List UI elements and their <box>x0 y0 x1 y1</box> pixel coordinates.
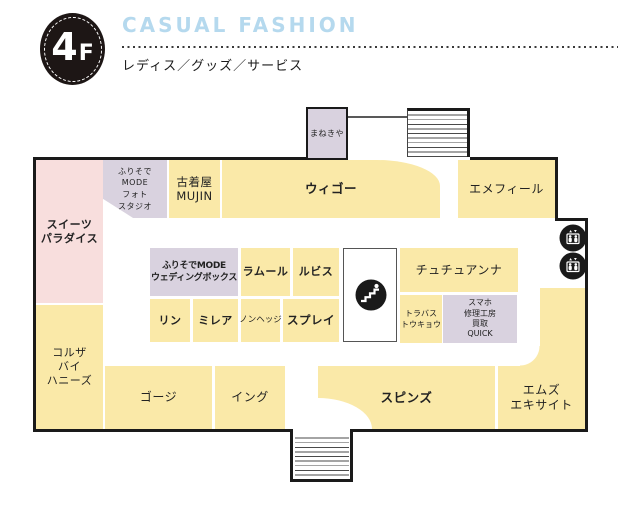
store-aimerfeel: エメフィール <box>458 160 555 218</box>
store-ms-excite-strip <box>540 288 585 368</box>
store-wego: ウィゴー <box>222 160 440 218</box>
store-tutuanna: チュチュアンナ <box>400 248 518 292</box>
store-ing: イング <box>215 366 285 429</box>
staircase-top <box>407 108 470 157</box>
store-sweets-paradise: スイーツ パラダイス <box>36 160 103 303</box>
store-smartphone-repair-quick: スマホ 修理工房 買取 QUICK <box>443 295 517 343</box>
elevator-icon <box>560 253 587 280</box>
store-spinns: スピンズ <box>318 366 495 429</box>
store-travas-tokyo: トラバス トウキョウ <box>400 295 442 343</box>
store-rubis: ルビス <box>293 248 339 296</box>
store-lamour: ラムール <box>241 248 290 296</box>
store-furisode-mode-wedding-box: ふりそでMODE ウェディングボックス <box>150 248 238 296</box>
store-spray: スプレイ <box>283 299 339 342</box>
escalator-icon <box>353 277 389 313</box>
corridor-curve-cut <box>318 398 372 429</box>
store-furugiya-mujin: 古着屋 MUJIN <box>169 160 220 218</box>
store-mirea: ミレア <box>193 299 238 342</box>
store-nonhedge: ノンヘッジ <box>241 299 280 342</box>
store-manekiya: まねきや <box>306 107 348 160</box>
store-ms-excite: エムズ エキサイト <box>498 366 585 429</box>
store-rin: リン <box>150 299 190 342</box>
store-ms-excite-fillet <box>520 346 540 366</box>
floor-map-page: 4 F CASUAL FASHION レディス／グッズ／サービス <box>0 0 625 505</box>
staircase-bottom <box>295 434 349 478</box>
store-gorge: ゴージ <box>105 366 212 429</box>
elevator-icon <box>560 225 587 252</box>
store-colza-by-honeys: コルザ バイ ハニーズ <box>36 305 103 429</box>
